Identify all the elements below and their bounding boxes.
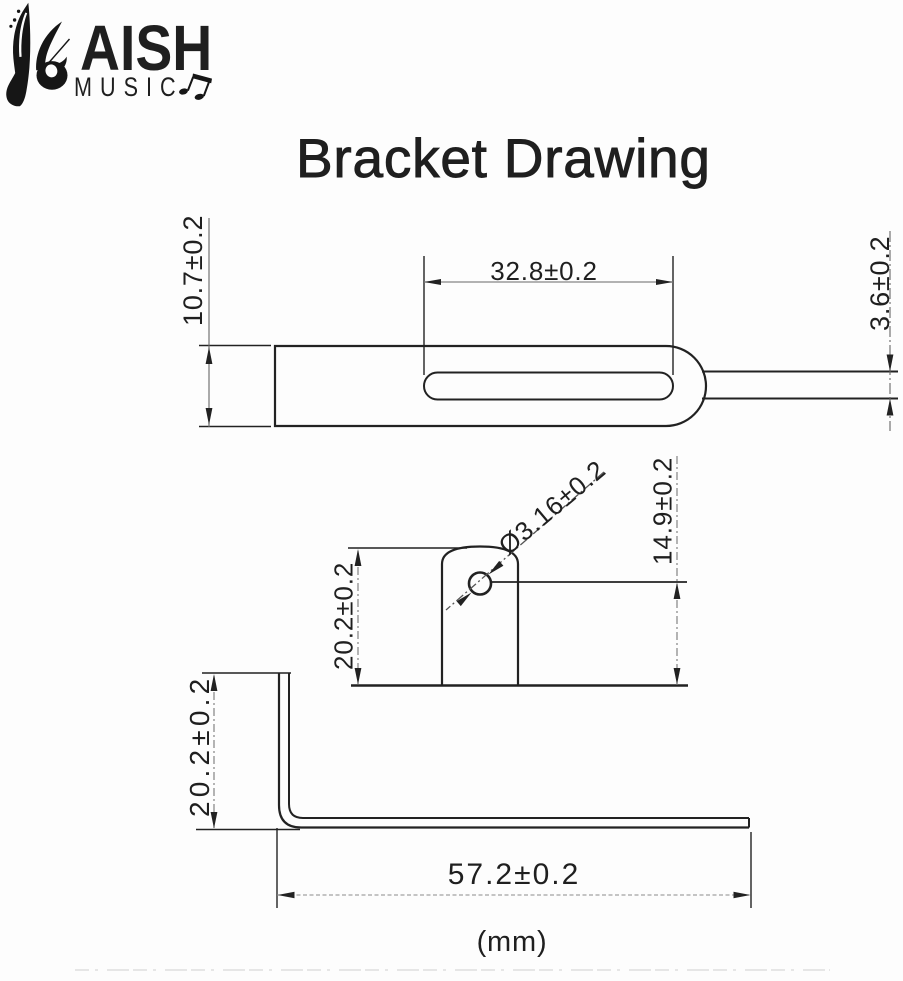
svg-text:3.6±0.2: 3.6±0.2 [865, 236, 895, 332]
svg-text:10.7±0.2: 10.7±0.2 [178, 215, 208, 326]
svg-text:57.2±0.2: 57.2±0.2 [448, 858, 581, 891]
svg-text:MUSIC: MUSIC [74, 73, 184, 103]
svg-text:14.9±0.2: 14.9±0.2 [648, 457, 678, 565]
svg-text:Ø3.16±0.2: Ø3.16±0.2 [493, 454, 612, 561]
svg-text:20.2±0.2: 20.2±0.2 [329, 562, 359, 670]
svg-text:Bracket Drawing: Bracket Drawing [296, 127, 711, 189]
svg-text:32.8±0.2: 32.8±0.2 [490, 256, 597, 286]
svg-text:(mm): (mm) [477, 926, 548, 958]
svg-text:20.2±0.2: 20.2±0.2 [184, 675, 215, 817]
